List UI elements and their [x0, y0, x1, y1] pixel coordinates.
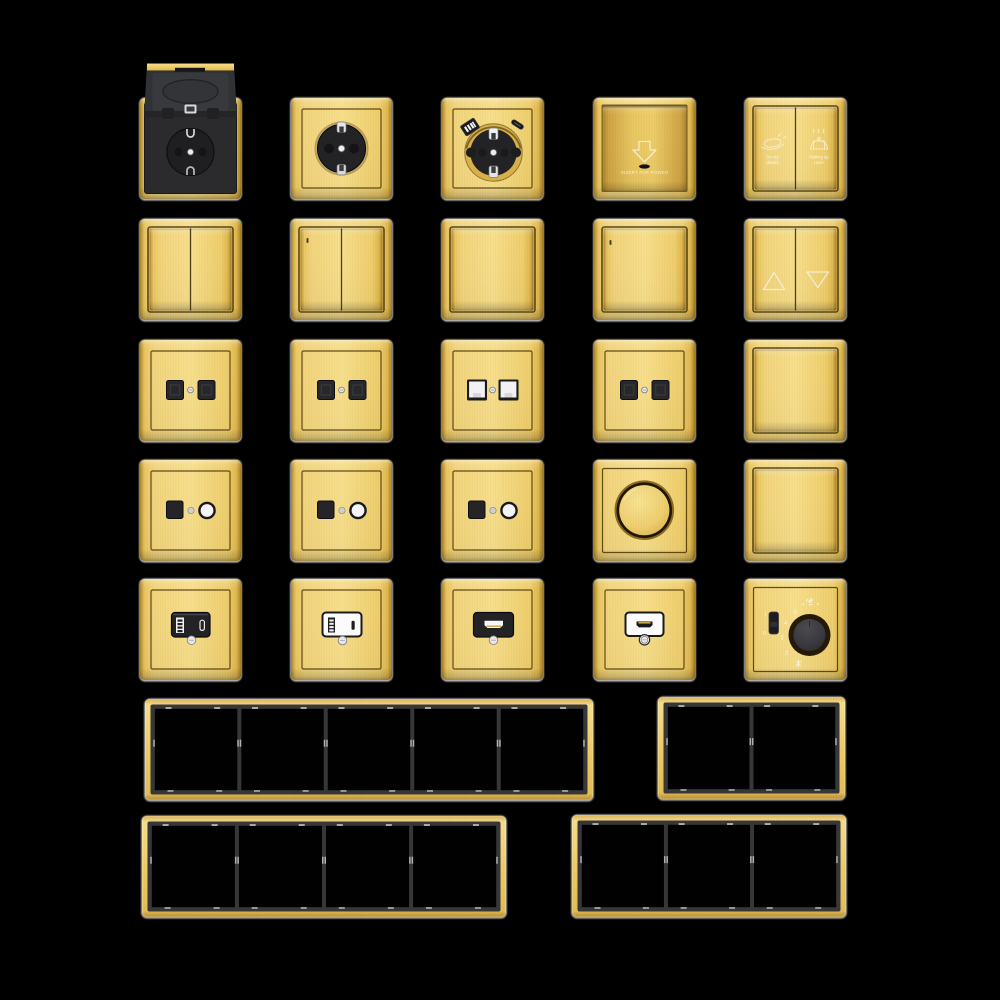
svg-text:4: 4: [784, 621, 787, 627]
svg-text:INSERT FOR POWER: INSERT FOR POWER: [620, 170, 668, 175]
svg-text:5: 5: [794, 610, 797, 616]
svg-text:room: room: [814, 160, 824, 165]
svg-text:3: 3: [781, 636, 784, 642]
svg-text:I: I: [765, 613, 766, 619]
svg-text:0: 0: [763, 631, 766, 637]
svg-text:2: 2: [785, 651, 788, 657]
svg-text:disturb: disturb: [766, 160, 779, 165]
svg-text:Making up: Making up: [809, 155, 829, 160]
svg-text:Do not: Do not: [766, 155, 779, 160]
